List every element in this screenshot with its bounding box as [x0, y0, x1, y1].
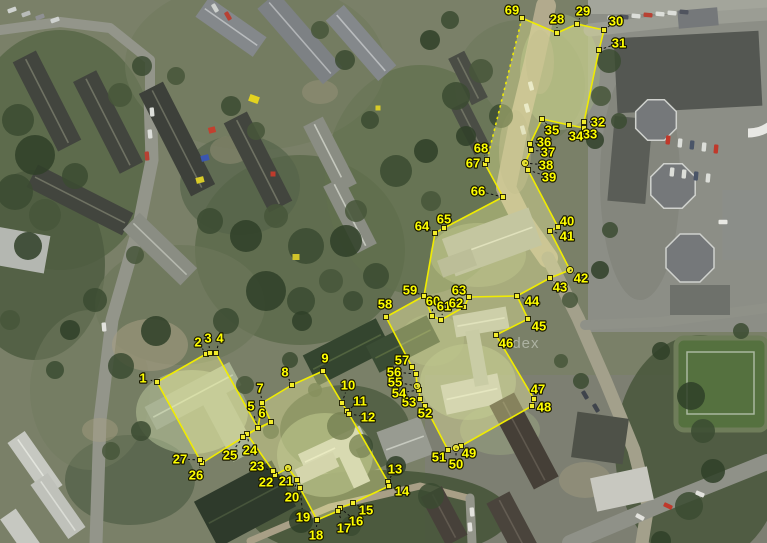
- vertex-label-28: 28: [550, 12, 564, 27]
- tree-canopy: [420, 30, 440, 50]
- building-roof: [723, 190, 767, 260]
- vertex-label-40: 40: [560, 214, 574, 229]
- vertex-marker-4[interactable]: [214, 351, 219, 356]
- vertex-label-39: 39: [542, 170, 556, 185]
- small-structure: [293, 254, 300, 260]
- tree-canopy: [675, 492, 703, 520]
- car: [689, 140, 694, 149]
- tree-canopy: [380, 155, 412, 187]
- tree-canopy: [167, 67, 185, 85]
- tree-canopy: [573, 373, 589, 389]
- vertex-label-43: 43: [553, 280, 567, 295]
- car: [679, 9, 688, 14]
- tree-canopy: [733, 323, 749, 339]
- vertex-label-14: 14: [395, 484, 410, 499]
- satellite-map[interactable]: ndex 12345678910111213141516171819202122…: [0, 0, 767, 543]
- car: [655, 11, 664, 16]
- vertex-label-33: 33: [583, 127, 597, 142]
- vertex-label-26: 26: [189, 468, 203, 483]
- tree-canopy: [343, 291, 363, 311]
- vertex-marker-47[interactable]: [532, 397, 537, 402]
- vertex-marker-17[interactable]: [336, 509, 341, 514]
- vertex-marker-9[interactable]: [321, 369, 326, 374]
- vertex-label-68: 68: [474, 141, 488, 156]
- car: [149, 107, 154, 116]
- vertex-marker-25[interactable]: [241, 435, 246, 440]
- vertex-label-42: 42: [574, 271, 588, 286]
- vertex-label-45: 45: [532, 319, 546, 334]
- vertex-label-13: 13: [388, 462, 402, 477]
- tree-canopy: [230, 220, 262, 252]
- vertex-marker-45[interactable]: [526, 317, 531, 322]
- vertex-marker-41[interactable]: [548, 229, 553, 234]
- car: [147, 129, 152, 138]
- tree-canopy: [15, 135, 55, 175]
- tree-canopy: [131, 421, 151, 441]
- tree-canopy: [414, 139, 438, 163]
- tree-canopy: [469, 59, 493, 83]
- small-structure: [271, 172, 276, 177]
- building-roof: [670, 285, 730, 315]
- vertex-label-63: 63: [452, 283, 466, 298]
- tower-roof: [666, 234, 714, 282]
- vertex-marker-37[interactable]: [529, 148, 534, 153]
- vertex-label-51: 51: [432, 450, 446, 465]
- vertex-marker-14[interactable]: [387, 484, 392, 489]
- vertex-marker-58[interactable]: [384, 315, 389, 320]
- vertex-marker-3[interactable]: [208, 351, 213, 356]
- tree-canopy: [108, 83, 132, 107]
- vertex-label-57: 57: [395, 353, 409, 368]
- building-roof: [571, 412, 629, 465]
- vertex-marker-1[interactable]: [155, 380, 160, 385]
- vertex-marker-66[interactable]: [501, 195, 506, 200]
- vertex-label-20: 20: [285, 490, 299, 505]
- vertex-label-52: 52: [418, 406, 432, 421]
- vertex-label-46: 46: [499, 336, 513, 351]
- tree-canopy: [221, 96, 241, 116]
- car: [693, 171, 698, 180]
- tree-canopy: [132, 56, 152, 76]
- vertex-marker-6[interactable]: [269, 420, 274, 425]
- vertex-label-65: 65: [437, 212, 451, 227]
- tree-canopy: [554, 354, 568, 368]
- tree-canopy: [442, 82, 470, 110]
- vertex-marker-30[interactable]: [602, 28, 607, 33]
- car: [705, 173, 710, 182]
- car: [643, 12, 652, 17]
- car: [701, 142, 706, 151]
- tree-canopy: [441, 11, 459, 29]
- tree-canopy: [421, 191, 441, 211]
- vertex-label-62: 62: [449, 296, 463, 311]
- vertex-label-9: 9: [321, 351, 328, 366]
- vertex-label-58: 58: [378, 297, 392, 312]
- tree-canopy: [236, 376, 254, 394]
- tree-canopy: [60, 320, 80, 340]
- vertex-label-22: 22: [259, 475, 273, 490]
- tree-canopy: [335, 50, 355, 70]
- vertex-marker-27[interactable]: [198, 458, 203, 463]
- car: [667, 10, 676, 15]
- building: [614, 31, 763, 113]
- vertex-label-5: 5: [247, 399, 254, 414]
- vertex-label-18: 18: [309, 528, 323, 543]
- tree-canopy: [363, 263, 389, 289]
- tree-canopy: [361, 111, 379, 129]
- vertex-marker-23[interactable]: [271, 469, 276, 474]
- car: [713, 144, 718, 153]
- vertex-marker-36[interactable]: [528, 142, 533, 147]
- vertex-marker-51[interactable]: [446, 448, 451, 453]
- map-viewport[interactable]: ndex 12345678910111213141516171819202122…: [0, 0, 767, 543]
- tree-canopy: [83, 288, 107, 312]
- car: [631, 13, 640, 18]
- tree-canopy: [62, 163, 88, 189]
- vertex-label-34: 34: [569, 129, 584, 144]
- vertex-label-31: 31: [612, 36, 626, 51]
- internal-boundary: [469, 296, 517, 297]
- vertex-marker-12[interactable]: [347, 412, 352, 417]
- vertex-marker-28[interactable]: [555, 31, 560, 36]
- tree-canopy: [108, 353, 134, 379]
- car: [681, 169, 686, 178]
- vertex-marker-69[interactable]: [520, 16, 525, 21]
- car: [467, 522, 472, 531]
- vertex-label-67: 67: [466, 156, 480, 171]
- vertex-marker-53[interactable]: [418, 397, 423, 402]
- tree-canopy: [197, 208, 223, 234]
- vertex-marker-20[interactable]: [295, 478, 300, 483]
- vertex-marker-35[interactable]: [540, 117, 545, 122]
- tree-canopy: [652, 342, 670, 360]
- vertex-label-6: 6: [258, 406, 265, 421]
- vertex-label-50: 50: [449, 457, 463, 472]
- tree-canopy: [418, 483, 444, 509]
- building-roof: [614, 31, 763, 113]
- vertex-label-7: 7: [256, 381, 263, 396]
- tree-canopy: [264, 204, 288, 228]
- vertex-marker-5[interactable]: [256, 426, 261, 431]
- tree-canopy: [126, 246, 144, 264]
- car: [101, 322, 106, 331]
- vertex-label-3: 3: [204, 331, 211, 346]
- car: [144, 151, 149, 160]
- vertex-label-30: 30: [609, 14, 623, 29]
- vertex-marker-43[interactable]: [548, 276, 553, 281]
- vertex-marker-56[interactable]: [414, 372, 419, 377]
- tree-canopy: [602, 222, 618, 238]
- vertex-label-24: 24: [243, 443, 258, 458]
- vertex-label-44: 44: [525, 294, 540, 309]
- tree-canopy: [29, 199, 61, 231]
- vertex-label-49: 49: [462, 446, 476, 461]
- tree-canopy: [0, 310, 20, 330]
- dirt-patch: [302, 80, 338, 104]
- vertex-marker-34[interactable]: [567, 123, 572, 128]
- building: [723, 190, 767, 260]
- tree-canopy: [677, 382, 705, 410]
- vertex-label-8: 8: [281, 365, 288, 380]
- vertex-marker-48[interactable]: [530, 404, 535, 409]
- vertex-label-59: 59: [403, 283, 417, 298]
- vertex-label-17: 17: [337, 521, 351, 536]
- satellite-imagery: [0, 0, 767, 543]
- car: [469, 507, 474, 516]
- vertex-marker-46[interactable]: [494, 333, 499, 338]
- tree-canopy: [611, 113, 627, 129]
- vertex-label-25: 25: [223, 448, 237, 463]
- vertex-label-27: 27: [173, 452, 187, 467]
- vertex-marker-60[interactable]: [430, 314, 435, 319]
- vertex-marker-39[interactable]: [526, 168, 531, 173]
- vertex-marker-57[interactable]: [410, 365, 415, 370]
- vertex-label-1: 1: [139, 371, 146, 386]
- tree-canopy: [2, 104, 34, 136]
- vertex-marker-10[interactable]: [340, 401, 345, 406]
- building: [670, 285, 730, 315]
- vertex-marker-32[interactable]: [582, 120, 587, 125]
- tree-canopy: [14, 232, 42, 260]
- vertex-label-12: 12: [361, 410, 375, 425]
- tree-canopy: [691, 419, 715, 443]
- vertex-label-10: 10: [341, 378, 355, 393]
- tree-canopy: [591, 86, 611, 106]
- vertex-label-19: 19: [296, 510, 310, 525]
- tree-canopy: [330, 225, 362, 257]
- vertex-label-23: 23: [250, 459, 264, 474]
- car: [669, 167, 674, 176]
- vertex-label-64: 64: [415, 219, 430, 234]
- vertex-marker-64[interactable]: [433, 231, 438, 236]
- tree-canopy: [319, 269, 343, 293]
- vertex-marker-61[interactable]: [439, 318, 444, 323]
- vertex-label-4: 4: [216, 331, 224, 346]
- road: [470, 498, 472, 543]
- car: [719, 220, 728, 224]
- tree-canopy: [701, 459, 725, 483]
- building: [571, 412, 629, 465]
- vertex-marker-29[interactable]: [575, 22, 580, 27]
- vertex-label-11: 11: [353, 394, 367, 409]
- vertex-marker-68[interactable]: [485, 158, 490, 163]
- vertex-label-69: 69: [505, 3, 519, 18]
- tree-canopy: [345, 200, 367, 222]
- vertex-marker-31[interactable]: [597, 48, 602, 53]
- vertex-marker-18[interactable]: [315, 518, 320, 523]
- car: [665, 135, 670, 144]
- tree-canopy: [102, 442, 120, 460]
- vertex-label-48: 48: [537, 400, 551, 415]
- vertex-label-47: 47: [531, 382, 545, 397]
- vertex-marker-8[interactable]: [290, 383, 295, 388]
- tree-canopy: [141, 316, 171, 346]
- tree-canopy: [591, 261, 609, 279]
- vertex-label-2: 2: [194, 335, 201, 350]
- tree-canopy: [292, 311, 312, 331]
- vertex-marker-15[interactable]: [351, 501, 356, 506]
- vertex-label-29: 29: [576, 4, 590, 19]
- tower-roof: [636, 100, 677, 141]
- tree-canopy: [311, 21, 329, 39]
- tree-canopy: [287, 287, 315, 315]
- vertex-label-21: 21: [279, 474, 293, 489]
- car: [677, 138, 682, 147]
- vertex-label-41: 41: [560, 229, 574, 244]
- tree-canopy: [246, 271, 286, 311]
- tree-canopy: [247, 122, 265, 140]
- vertex-marker-44[interactable]: [515, 294, 520, 299]
- small-structure: [376, 106, 381, 111]
- vertex-marker-63[interactable]: [467, 295, 472, 300]
- tree-canopy: [46, 361, 64, 379]
- vertex-label-66: 66: [471, 184, 485, 199]
- dirt-patch: [82, 418, 118, 442]
